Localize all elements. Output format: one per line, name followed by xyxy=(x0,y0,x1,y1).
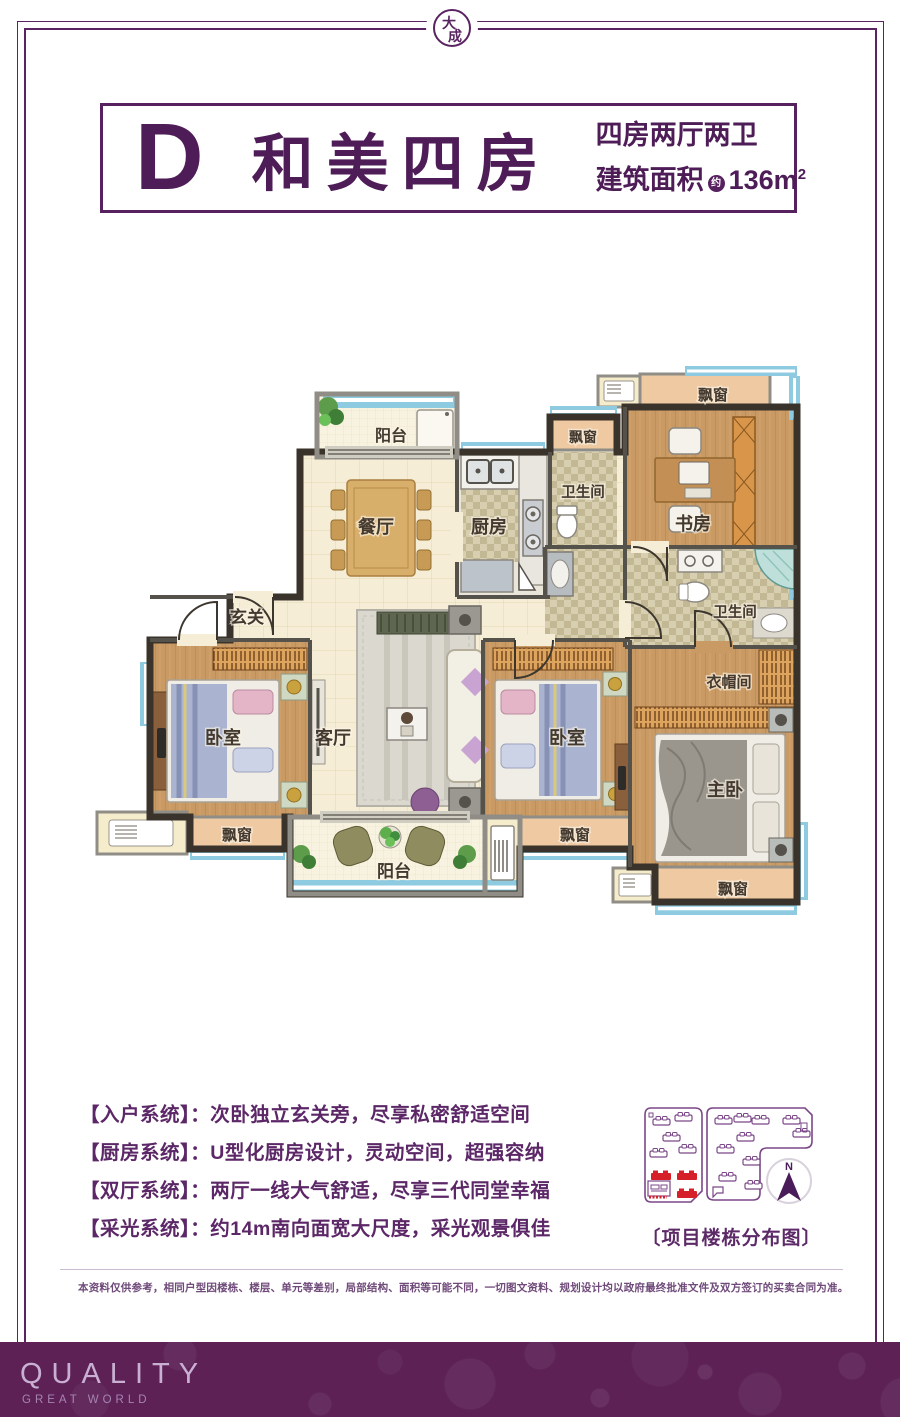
disclaimer-text: 本资料仅供参考，相同户型因楼栋、楼层、单元等差别，局部结构、面积等可能不同，一切… xyxy=(78,1281,850,1295)
frame-line xyxy=(24,28,26,1342)
unit-name: 和美四房 xyxy=(252,113,552,203)
frame-line xyxy=(883,21,884,1342)
room-label: 阳台 xyxy=(377,861,411,881)
footer-subtitle: GREAT WORLD xyxy=(22,1394,151,1406)
room-label: 客厅 xyxy=(315,727,351,748)
room-label: 卧室 xyxy=(549,727,585,748)
room-label: 飘窗 xyxy=(698,386,728,404)
footer-title: QUALITY xyxy=(20,1358,207,1391)
unit-specs: 四房两厅两卫 建筑面积约136m2 xyxy=(596,116,806,200)
room-label: 厨房 xyxy=(471,516,507,537)
room-label: 飘窗 xyxy=(569,429,597,445)
spec-line: 四房两厅两卫 xyxy=(596,116,806,155)
compass-icon: N xyxy=(767,1159,811,1203)
frame-line xyxy=(17,21,18,1342)
room-label: 主卧 xyxy=(707,779,743,800)
room-label: 飘窗 xyxy=(222,826,252,844)
feature-row: 【入户系统】：次卧独立玄关旁，尽享私密舒适空间 xyxy=(80,1096,551,1134)
room-label: 飘窗 xyxy=(718,880,748,898)
logo-char: 成 xyxy=(448,26,462,46)
unit-letter: D xyxy=(135,115,204,201)
room-label: 餐厅 xyxy=(357,516,394,537)
room-label: 书房 xyxy=(675,513,711,534)
title-box: D 和美四房 四房两厅两卫 建筑面积约136m2 xyxy=(100,103,797,213)
area-line: 建筑面积约136m2 xyxy=(596,155,806,200)
frame-line xyxy=(875,28,877,1342)
floorplan-diagram: 阳台 餐厅 厨房 卫生间 飘窗 书房 飘窗 玄关 卧室 客厅 飘窗 阳台 卧室 … xyxy=(95,362,825,947)
room-label: 卧室 xyxy=(205,727,241,748)
divider-rule xyxy=(60,1269,843,1270)
site-map-diagram: N xyxy=(633,1093,830,1211)
feature-row: 【采光系统】：约14m南向面宽大尺度，采光观景俱佳 xyxy=(80,1210,551,1248)
room-label: 阳台 xyxy=(375,426,407,445)
feature-list: 【入户系统】：次卧独立玄关旁，尽享私密舒适空间 【厨房系统】：U型化厨房设计，灵… xyxy=(80,1096,551,1248)
room-label: 飘窗 xyxy=(560,826,590,844)
footer-band: QUALITY GREAT WORLD xyxy=(0,1342,900,1417)
approx-badge: 约 xyxy=(708,175,725,192)
brand-logo-icon: 大 成 xyxy=(433,9,471,47)
feature-row: 【厨房系统】：U型化厨房设计，灵动空间，超强容纳 xyxy=(80,1134,551,1172)
site-map-caption: 〔项目楼栋分布图〕 xyxy=(633,1223,830,1250)
svg-text:N: N xyxy=(785,1161,793,1173)
room-label: 卫生间 xyxy=(713,603,757,621)
room-label: 衣帽间 xyxy=(706,673,751,691)
site-map: N 〔项目楼栋分布图〕 xyxy=(633,1093,830,1250)
feature-row: 【双厅系统】：两厅一线大气舒适，尽享三代同堂幸福 xyxy=(80,1172,551,1210)
room-label: 卫生间 xyxy=(561,483,605,501)
room-label: 玄关 xyxy=(230,607,264,627)
flyer-page: 大 成 D 和美四房 四房两厅两卫 建筑面积约136m2 xyxy=(0,0,900,1417)
